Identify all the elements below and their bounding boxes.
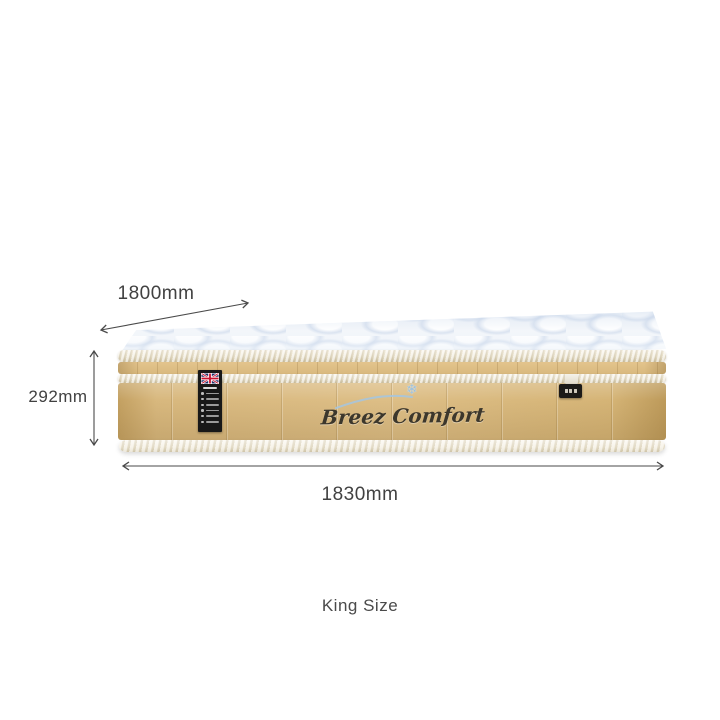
snowflake-icon: ❄ (406, 382, 418, 398)
size-name-label: King Size (290, 596, 430, 616)
width-dimension-label: 1830mm (300, 484, 420, 506)
depth-dimension-label: 1800mm (106, 283, 206, 305)
mattress-image: ❄ Breez Comfort (118, 310, 666, 452)
height-dimension-label: 292mm (18, 387, 98, 407)
product-dimension-diagram: 1800mm 292mm 1830mm King Size (0, 0, 720, 720)
care-label (198, 370, 222, 432)
union-jack-icon (201, 373, 219, 384)
brand-embroidery-group: ❄ Breez Comfort (318, 380, 488, 435)
mattress-bottom-border (119, 440, 665, 452)
brand-embroidery: Breez Comfort (317, 403, 489, 430)
mattress-top-piping (118, 350, 666, 362)
brand-tag (559, 384, 582, 398)
care-label-title-line (203, 387, 217, 389)
